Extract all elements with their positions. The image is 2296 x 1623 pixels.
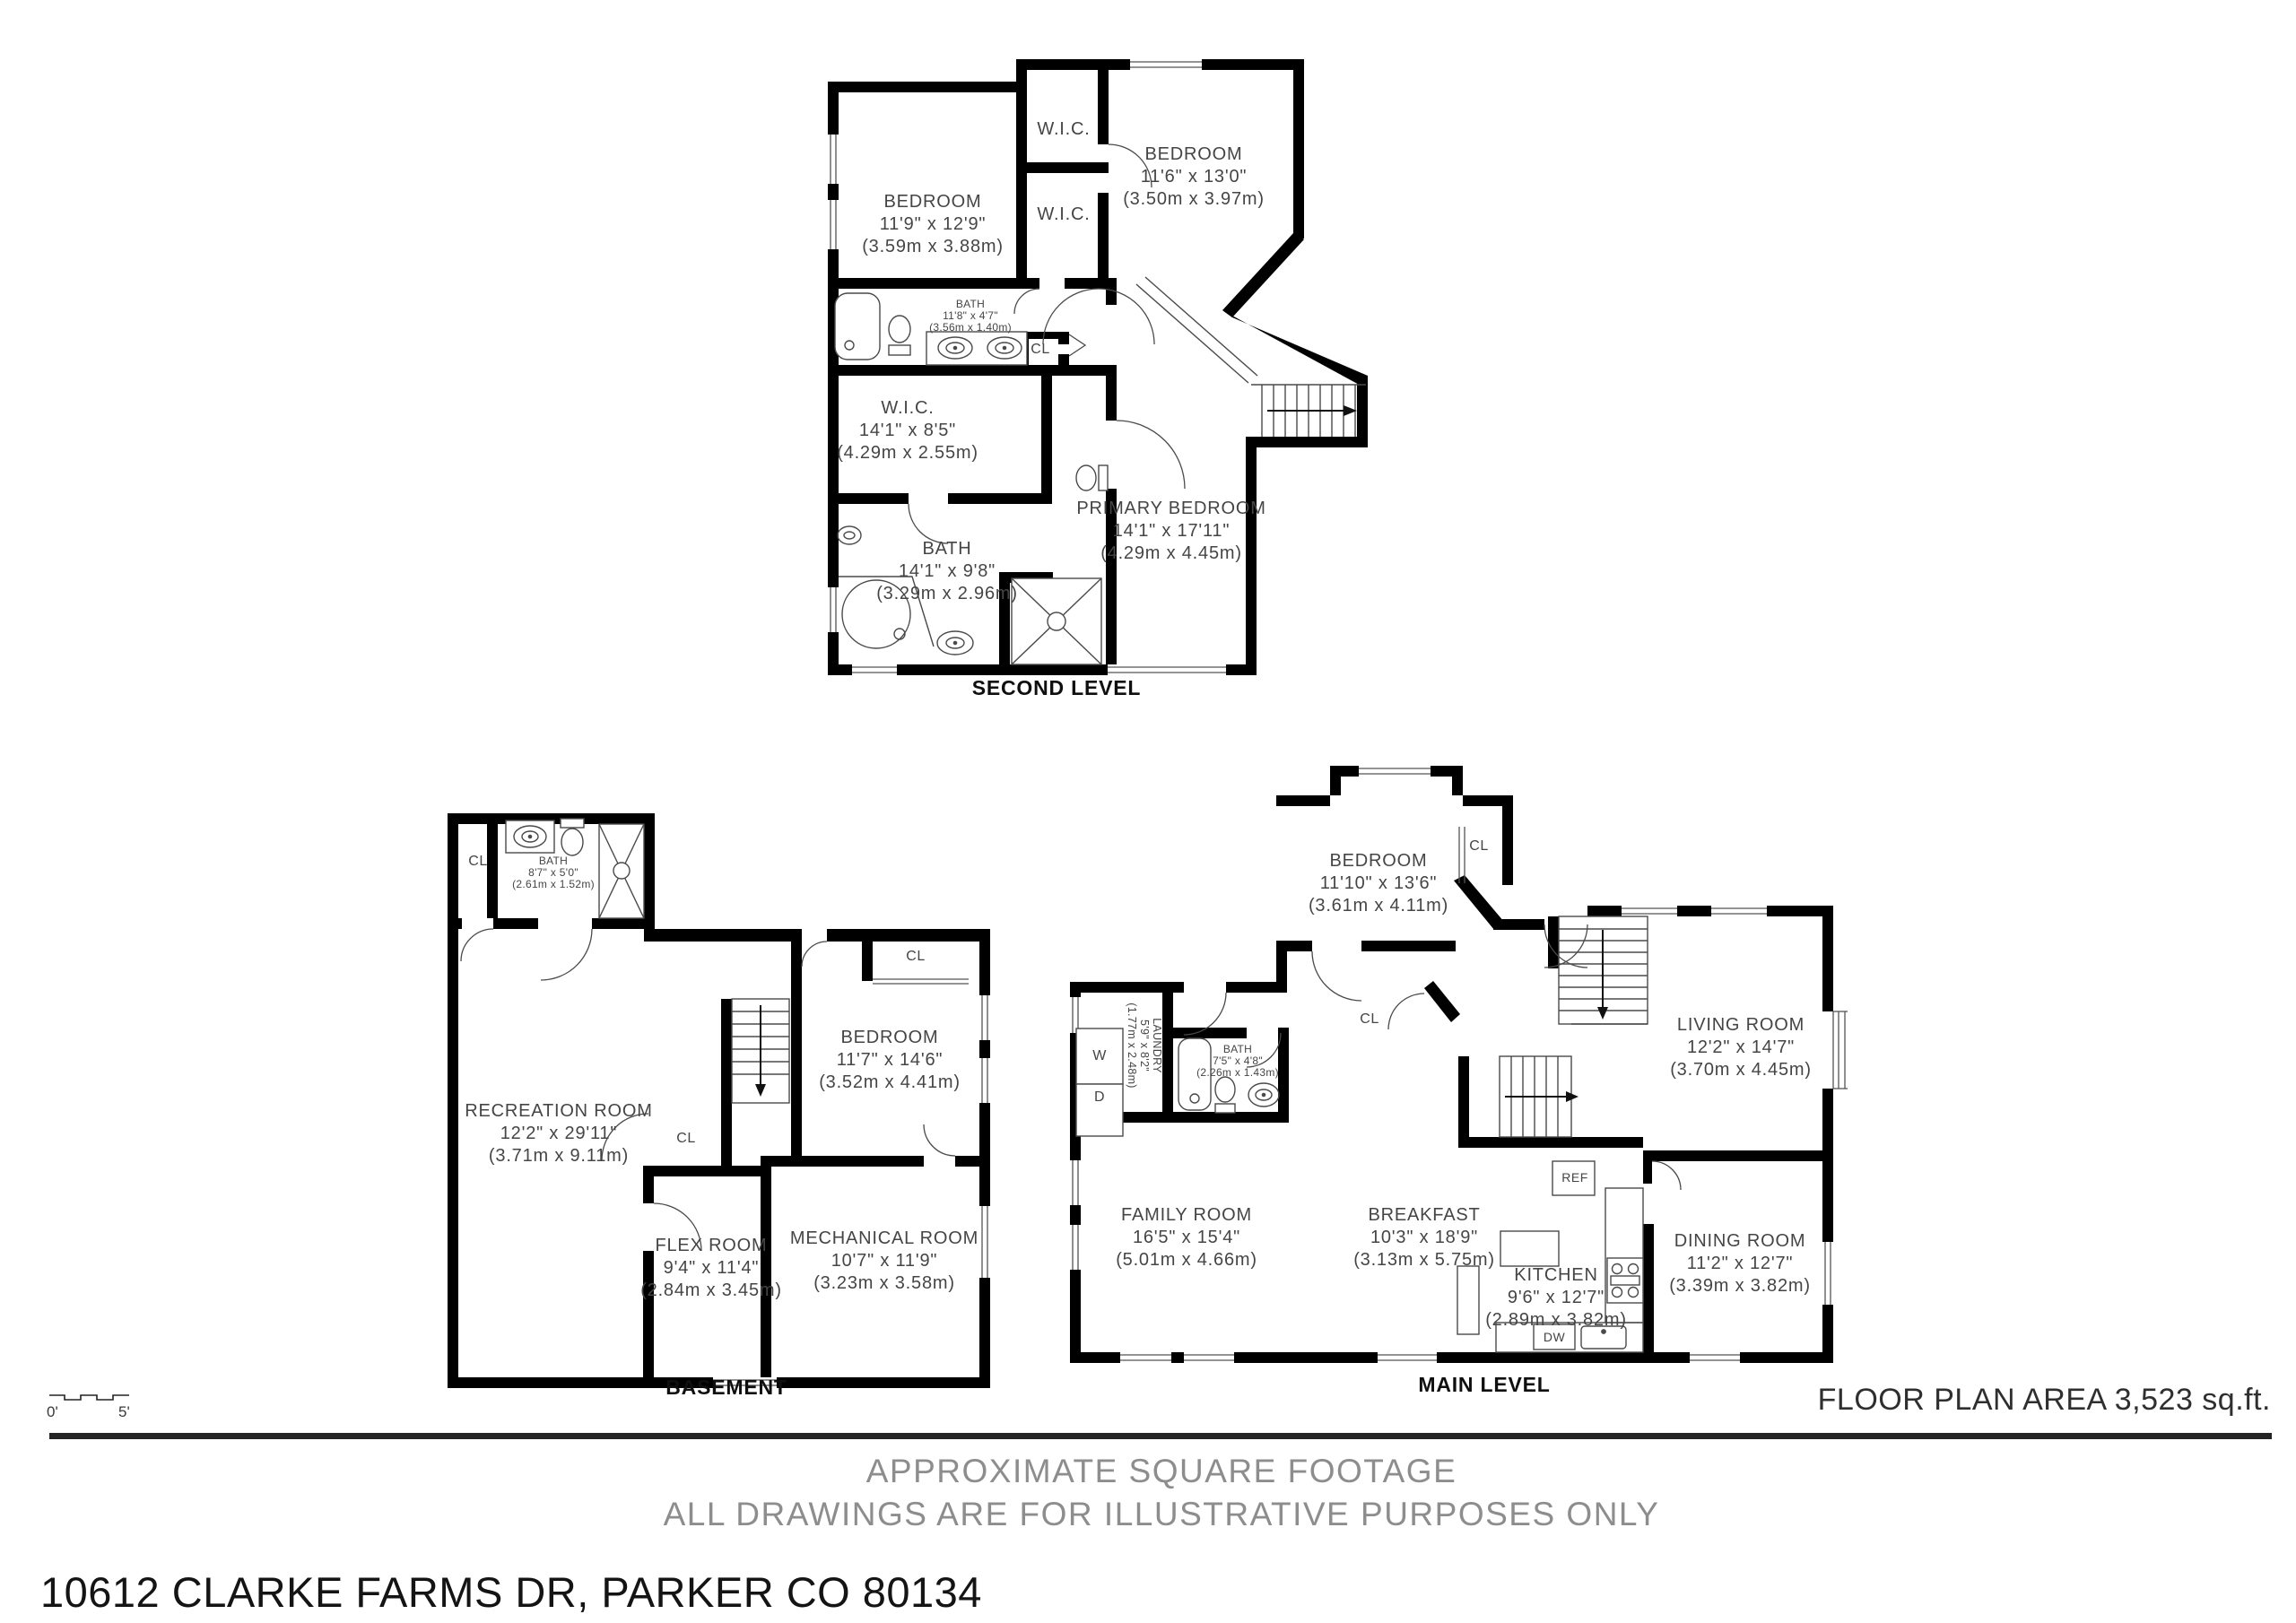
tub-icon [835,293,880,360]
closet-tag-basement-stairs: CL [676,1131,695,1147]
room-label-wic-top: W.I.C. [1037,118,1090,141]
sink-icon [1248,1083,1279,1107]
room-label-wic-mid: W.I.C. [1037,204,1090,226]
room-label-bedroom-right: BEDROOM 11'6" x 13'0" (3.50m x 3.97m) [1123,143,1265,211]
floor-plan-page: BEDROOM 11'9" x 12'9" (3.59m x 3.88m) W.… [0,0,2296,1623]
column-post [1457,1266,1479,1334]
closet-tag-main-hall: CL [1360,1011,1378,1028]
room-label-dining-room: DINING ROOM 11'2" x 12'7" (3.39m x 3.82m… [1669,1230,1811,1298]
room-label-living-room: LIVING ROOM 12'2" x 14'7" (3.70m x 4.45m… [1670,1014,1812,1081]
toilet-icon [889,316,910,355]
scale-end-label: 5' [118,1403,130,1421]
room-label-bath-primary: BATH 14'1" x 9'8" (3.29m x 2.96m) [876,538,1018,605]
floor-plan-area-note: FLOOR PLAN AREA 3,523 sq.ft. [1818,1383,2271,1418]
room-label-bedroom-left: BEDROOM 11'9" x 12'9" (3.59m x 3.88m) [862,191,1004,258]
vanity-sink-icon [506,820,554,853]
room-label-mechanical-room: MECHANICAL ROOM 10'7" x 11'9" (3.23m x 3… [790,1228,978,1295]
room-label-wic-primary: W.I.C. 14'1" x 8'5" (4.29m x 2.55m) [837,397,978,464]
closet-tag-basement-bedroom: CL [906,949,925,965]
shower-icon [599,824,644,918]
double-sink-icon [926,332,1027,365]
room-label-basement-bath: BATH 8'7" x 5'0" (2.61m x 1.52m) [512,855,595,890]
footnote-square-footage: APPROXIMATE SQUARE FOOTAGE [866,1453,1457,1490]
second-level-stairs [1136,277,1366,437]
bay-window-icon [1833,1011,1848,1089]
closet-tag-basement-top: CL [468,854,487,870]
shower-icon [1012,578,1101,664]
caption-second-level: SECOND LEVEL [972,676,1142,700]
property-address: 10612 CLARKE FARMS DR, PARKER CO 80134 [40,1567,982,1617]
room-label-primary-bedroom: PRIMARY BEDROOM 14'1" x 17'11" (4.29m x … [1076,498,1265,565]
kitchen-island [1500,1231,1559,1266]
vanity-sink-icon [937,631,973,655]
room-label-laundry: LAUNDRY 5'9" x 8'2" (1.77m x 2.48m) [1126,1002,1163,1089]
room-label-recreation-room: RECREATION ROOM 12'2" x 29'11" (3.71m x … [465,1100,652,1167]
dryer-tag: D [1094,1089,1105,1106]
room-label-main-bedroom: BEDROOM 11'10" x 13'6" (3.61m x 4.11m) [1309,850,1448,917]
refrigerator-tag: REF [1561,1170,1588,1185]
main-level-stairs [1500,916,1648,1137]
room-label-breakfast: BREAKFAST 10'3" x 18'9" (3.13m x 5.75m) [1353,1204,1495,1271]
closet-tag-second-hall: CL [1031,342,1049,358]
footnote-illustrative: ALL DRAWINGS ARE FOR ILLUSTRATIVE PURPOS… [664,1496,1660,1533]
room-label-bath-hall: BATH 11'8" x 4'7" (3.56m x 1.40m) [929,299,1012,334]
room-label-kitchen: KITCHEN 9'6" x 12'7" (2.89m x 3.82m) [1485,1264,1627,1332]
scale-start-label: 0' [47,1403,58,1421]
room-label-flex-room: FLEX ROOM 9'4" x 11'4" (2.84m x 3.45m) [640,1235,782,1302]
dishwasher-tag: DW [1544,1330,1565,1344]
room-label-family-room: FAMILY ROOM 16'5" x 15'4" (5.01m x 4.66m… [1116,1204,1257,1271]
toilet-icon [1215,1077,1235,1113]
footer-divider [49,1433,2272,1439]
room-label-main-bath: BATH 7'5" x 4'8" (2.26m x 1.43m) [1196,1044,1279,1079]
scale-bar-icon [45,1388,152,1408]
closet-tag-main-bedroom: CL [1469,838,1488,855]
caption-main-level: MAIN LEVEL [1418,1373,1550,1397]
toilet-icon [1076,465,1108,490]
second-level-fixtures [835,293,1108,664]
caption-basement: BASEMENT [665,1376,787,1400]
room-label-basement-bedroom: BEDROOM 11'7" x 14'6" (3.52m x 4.41m) [819,1027,961,1094]
pedestal-sink-icon [838,526,861,544]
toilet-icon [561,819,584,855]
basement-stairs [732,999,789,1103]
washer-tag: W [1092,1048,1107,1064]
